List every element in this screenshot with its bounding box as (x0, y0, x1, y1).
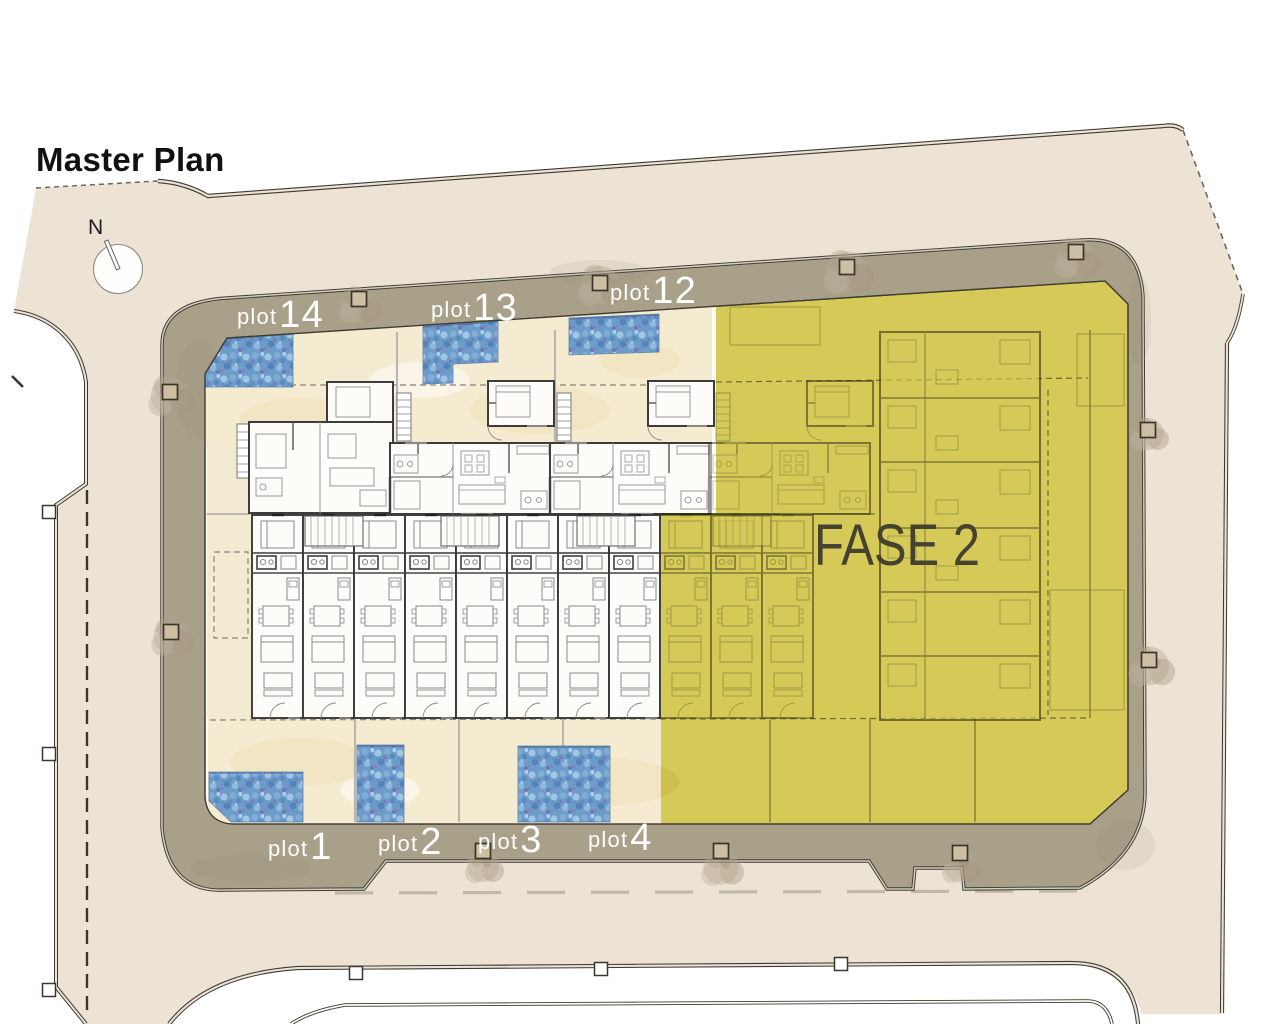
svg-text:Master Plan: Master Plan (36, 141, 225, 178)
svg-text:FASE 2: FASE 2 (814, 513, 980, 578)
svg-text:N: N (88, 216, 103, 239)
